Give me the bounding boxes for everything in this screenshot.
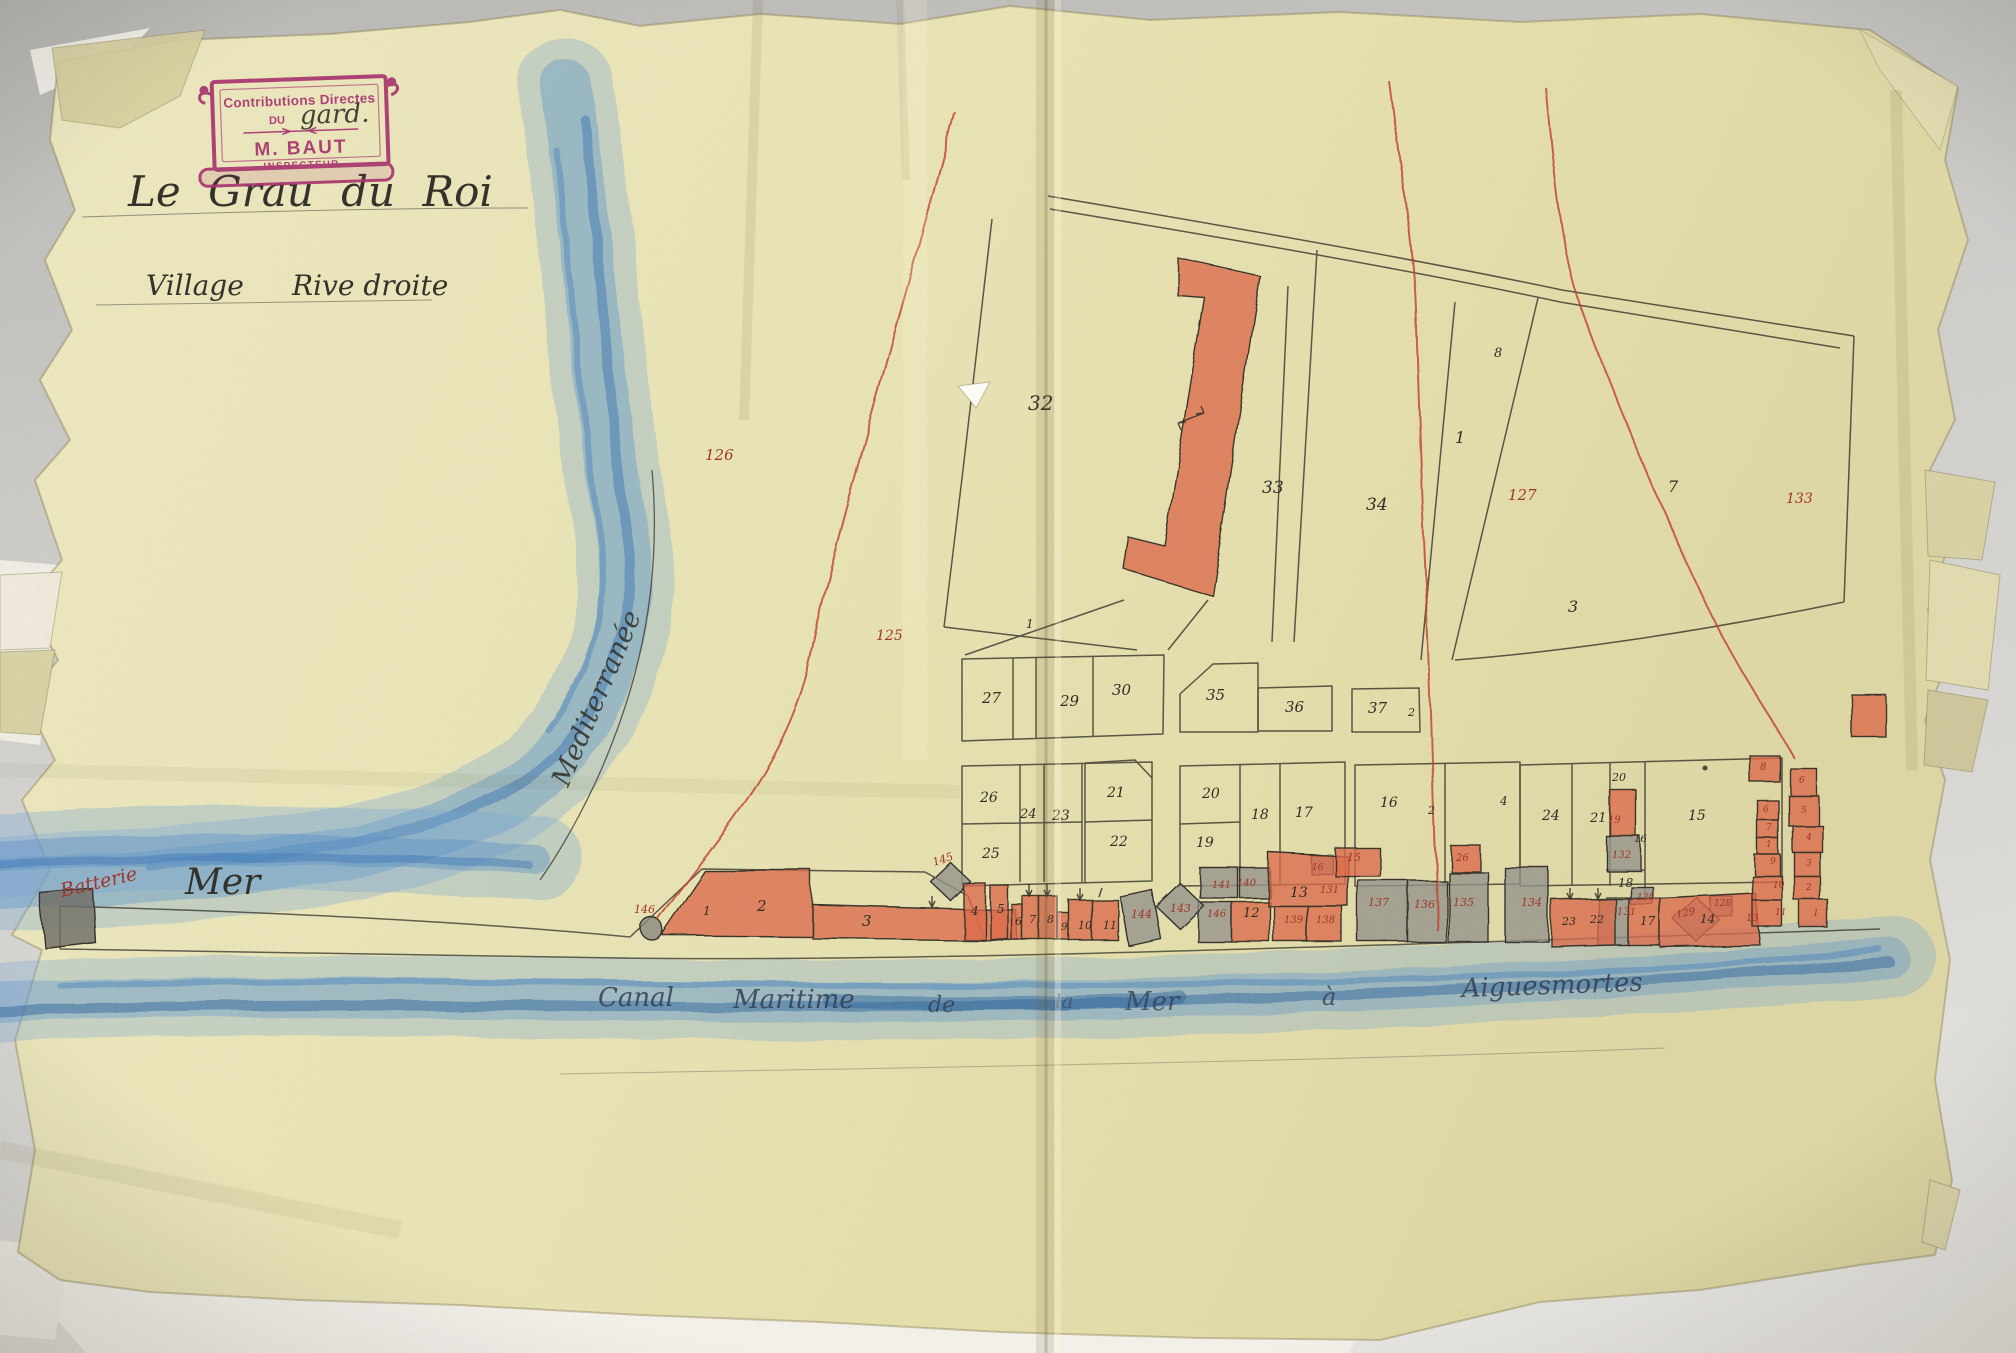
map-drawing: 32 33 34 1 7 8 3 1 27 29 30 35 36 37 2 2… xyxy=(0,0,2016,1353)
scanned-cadastral-map-photo: 32 33 34 1 7 8 3 1 27 29 30 35 36 37 2 2… xyxy=(0,0,2016,1353)
photo-grain xyxy=(0,0,2016,1353)
